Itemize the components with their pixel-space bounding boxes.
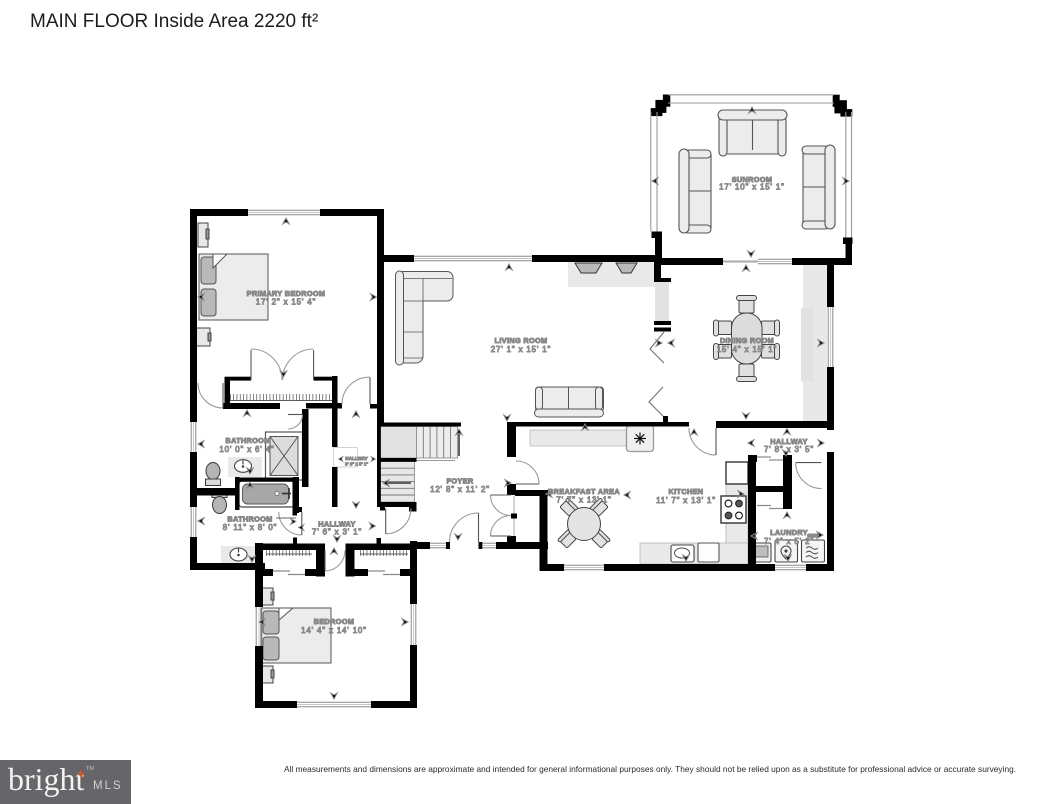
svg-text:BATHROOM: BATHROOM — [225, 436, 270, 445]
svg-text:10' 0" x 6' 4": 10' 0" x 6' 4" — [219, 445, 274, 454]
svg-text:LIVING ROOM: LIVING ROOM — [495, 336, 548, 345]
svg-text:7' 4" x 5' 2": 7' 4" x 5' 2" — [764, 537, 814, 546]
svg-text:7' 8" x 3' 5": 7' 8" x 3' 5" — [764, 445, 814, 454]
svg-text:7' 7" x 13' 1": 7' 7" x 13' 1" — [556, 496, 611, 505]
svg-text:8' 11" x 8' 0": 8' 11" x 8' 0" — [223, 523, 278, 532]
svg-text:17' 2" x 15' 4": 17' 2" x 15' 4" — [256, 298, 316, 307]
svg-text:17' 10" x 15' 1": 17' 10" x 15' 1" — [719, 183, 785, 192]
svg-text:11' 7" x 13' 1": 11' 7" x 13' 1" — [656, 496, 716, 505]
svg-text:LAUNDRY: LAUNDRY — [770, 528, 808, 537]
svg-text:BEDROOM: BEDROOM — [314, 617, 355, 626]
svg-text:DINING ROOM: DINING ROOM — [720, 336, 774, 345]
svg-text:HALLWAY: HALLWAY — [345, 456, 368, 461]
svg-text:7' 6" x 3' 1": 7' 6" x 3' 1" — [312, 528, 362, 537]
svg-text:12' 8" x 11' 2": 12' 8" x 11' 2" — [430, 485, 490, 494]
svg-text:14' 4" x 14' 10": 14' 4" x 14' 10" — [301, 626, 367, 635]
svg-text:3' 8" x 5' 1": 3' 8" x 5' 1" — [345, 461, 368, 466]
svg-text:KITCHEN: KITCHEN — [669, 487, 704, 496]
svg-text:27' 1" x 15' 1": 27' 1" x 15' 1" — [491, 345, 551, 354]
svg-text:15' 4" x 15' 1": 15' 4" x 15' 1" — [717, 345, 777, 354]
